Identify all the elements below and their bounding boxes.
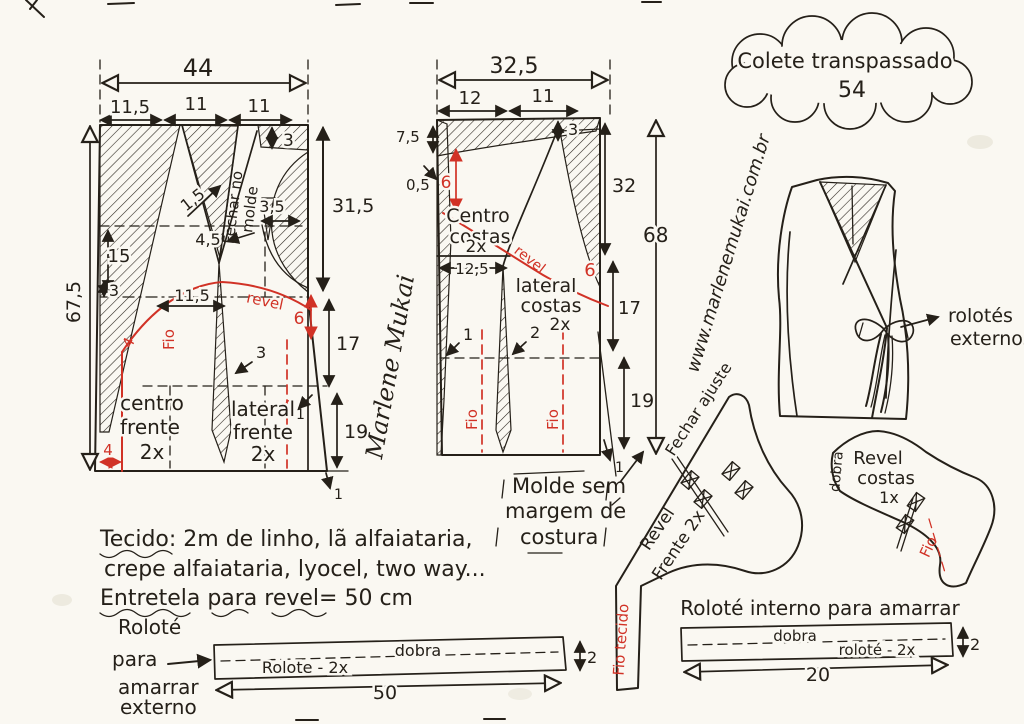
rolote-interno-piece-label: roloté - 2x [839, 641, 916, 659]
front-d3-top-label: 3 [283, 131, 294, 151]
back-d6-top-label: 6 [441, 173, 452, 193]
back-fio-left-label: Fio [463, 409, 481, 430]
pointer-arrow [604, 440, 610, 460]
front-pattern-piece: 44 11,5 11 11 revel 6 4 4 Fio Fio 67,5 [63, 54, 374, 503]
website-text: www.marlenemukai.com.br [683, 131, 776, 375]
back-d12-5-label: 12,5 [455, 260, 488, 278]
grainline-label-group: Fio [463, 409, 481, 430]
vest-illustration: rolotés externos [778, 177, 1024, 419]
front-d31-5-label: 31,5 [332, 195, 374, 217]
paper-smudge [52, 594, 72, 606]
front-d11-5-label: 11,5 [174, 286, 210, 305]
back-seg2-label: 11 [532, 86, 555, 107]
back-d17-label: 17 [618, 298, 641, 319]
front-d6-label: 6 [294, 309, 305, 329]
cloud-size: 54 [838, 78, 866, 103]
vest-princess-seam-left [787, 232, 797, 416]
pointer-arrow [447, 343, 459, 355]
front-revel-label: revel [245, 288, 285, 313]
vest-bow [855, 319, 913, 413]
scanned-sewing-pattern-page: 44 11,5 11 11 revel 6 4 4 Fio Fio 67,5 [0, 0, 1024, 724]
pattern-drawing: 44 11,5 11 11 revel 6 4 4 Fio Fio 67,5 [0, 0, 1024, 724]
fechar-no-molde-group: Fechar no molde [220, 170, 264, 247]
back-pattern-piece: 32,5 12 11 6 revel 6 Fio Fio 7,5 0,5 3 3… [396, 54, 668, 476]
revel-costas-label-line1: Revel [853, 448, 903, 469]
decor-line [502, 480, 504, 498]
revel-costas-dobra-label: dobra [827, 451, 846, 493]
rolote-interno-width-label: 20 [806, 664, 830, 686]
cloud-title: Colete transpassado [737, 49, 952, 73]
dobra-group: dobra [827, 451, 846, 493]
pointer-arrow [621, 452, 643, 481]
pointer-arrow [299, 395, 312, 408]
back-d19-label: 19 [630, 390, 654, 412]
back-total-width-label: 32,5 [490, 54, 539, 79]
dart-cross-marks [896, 493, 924, 534]
signature-text: Marlene Mukai [360, 273, 420, 462]
fio-tecido-group: Fio tecido [610, 603, 633, 676]
front-d1-side-label: 1 [296, 407, 305, 423]
front-seg1-label: 11,5 [110, 97, 150, 118]
rolote-externo-dobra-label: dobra [395, 641, 441, 660]
front-d4-bottom-label: 4 [103, 441, 113, 459]
back-seg1-label: 12 [459, 88, 482, 109]
fabric-notes: Tecido: 2m de linho, lã alfaiataria, cre… [99, 527, 486, 617]
back-lateral-line1: lateral [516, 275, 577, 297]
front-seg2-label: 11 [185, 94, 208, 115]
grainline-label-group: Fio [544, 409, 562, 430]
front-d3-5-label: 3,5 [259, 197, 284, 216]
front-centro-line2: frente [120, 415, 180, 439]
front-d3-left-label: 3 [109, 281, 119, 300]
front-lateral-line1: lateral [231, 397, 295, 421]
grainline-label-group: Fio [916, 534, 941, 561]
back-d3-label: 3 [568, 120, 578, 139]
front-seg3-label: 11 [248, 96, 271, 117]
back-d68-label: 68 [643, 223, 668, 247]
rolote-externo-label-line1: Roloté [118, 615, 181, 639]
molde-note-line2: margem de [505, 499, 626, 523]
rolote-externo-label-line4: externo [120, 695, 197, 719]
title-cloud: Colete transpassado 54 [725, 13, 972, 129]
front-centro-line3: 2x [140, 440, 165, 464]
rolote-externo-piece-label: Rolote - 2x [262, 658, 348, 677]
back-centro-line3: 2x [466, 237, 487, 257]
decor-line [604, 528, 606, 546]
front-centro-line1: centro [120, 391, 184, 415]
back-d0-5-label: 0,5 [406, 176, 430, 194]
pointer-arrow [326, 473, 330, 488]
height-label-group: 67,5 [63, 281, 85, 323]
back-d1-dart-label: 1 [463, 325, 473, 344]
bow-detail [859, 323, 863, 337]
front-total-width-label: 44 [183, 54, 214, 82]
front-d17-label: 17 [336, 333, 360, 355]
hatch-region-armhole [271, 152, 308, 292]
rolote-interno-dobra-label: dobra [773, 627, 817, 645]
pointer-arrow [168, 660, 210, 664]
revel-back-piece: dobra Revel costas 1x Fio [827, 431, 994, 586]
grainline-label-group: Fio [160, 329, 178, 350]
internal-tie-strip: Roloté interno para amarrar dobra roloté… [680, 596, 980, 686]
front-lateral-line2: frente [233, 420, 293, 444]
princess-line [503, 131, 557, 266]
fio-tecido-label: Fio tecido [610, 603, 633, 676]
back-centro-line1: Centro [446, 205, 509, 227]
website-url: www.marlenemukai.com.br [683, 131, 776, 375]
back-d7-5-label: 7,5 [396, 128, 420, 146]
back-d2-dart-label: 2 [530, 323, 540, 342]
back-revel-label: revel [511, 243, 548, 277]
rolote-interno-title: Roloté interno para amarrar [680, 596, 960, 620]
front-lateral-line3: 2x [251, 442, 276, 466]
back-fio-right-label: Fio [544, 409, 562, 430]
hatch-region [100, 125, 180, 432]
fabric-note-line1: Tecido: 2m de linho, lã alfaiataria, [99, 527, 473, 552]
pointer-arrow [236, 362, 252, 373]
seam-allowance-note: Molde sem margem de costura [496, 471, 626, 553]
front-height-label: 67,5 [63, 281, 85, 323]
rolote-interno-height-label: 2 [970, 635, 980, 654]
fabric-note-line2: crepe alfaiataria, lyocel, two way... [104, 557, 486, 582]
revel-costas-label-line3: 1x [879, 488, 899, 507]
revel-label-group: revel [511, 243, 548, 277]
front-fio-label: Fio [160, 329, 178, 350]
decor-line [496, 528, 498, 546]
fabric-note-line3: Entretela para revel= 50 cm [100, 586, 413, 611]
revel-costas-fio-label: Fio [916, 534, 941, 561]
hatch-dart [496, 266, 511, 452]
external-tie-strip: Roloté para amarrar externo dobra Rolote… [112, 615, 597, 719]
front-d4-5-label: 4,5 [195, 230, 220, 249]
rolote-externo-width-label: 50 [373, 682, 397, 704]
back-lateral-line3: 2x [550, 315, 571, 335]
front-d3-dart-label: 3 [256, 343, 266, 362]
pointer-arrow [901, 317, 938, 327]
rolote-externo-label-line2: para [112, 647, 157, 671]
front-d15-label: 15 [108, 246, 131, 267]
paper-smudge [508, 688, 532, 700]
rolote-externo-height-label: 2 [587, 648, 597, 667]
revel-label-group: revel [245, 288, 285, 313]
pointer-arrow [513, 342, 526, 354]
molde-note-line1: Molde sem [512, 474, 626, 498]
vest-label-line1: rolotés [948, 305, 1013, 327]
back-lateral-line2: costas [521, 295, 582, 317]
dart-cross-marks [681, 462, 753, 509]
revel-costas-label-line2: costas [857, 468, 915, 489]
molde-note-line3: costura [520, 525, 598, 549]
paper-smudge [967, 135, 993, 149]
hatch-dart [212, 263, 231, 462]
back-d32-label: 32 [612, 175, 636, 197]
front-d1-bottom-label: 1 [334, 487, 343, 503]
signature: Marlene Mukai [360, 273, 420, 462]
back-d6-revel-label: 6 [584, 260, 595, 281]
vest-label-line2: externos [950, 328, 1024, 350]
